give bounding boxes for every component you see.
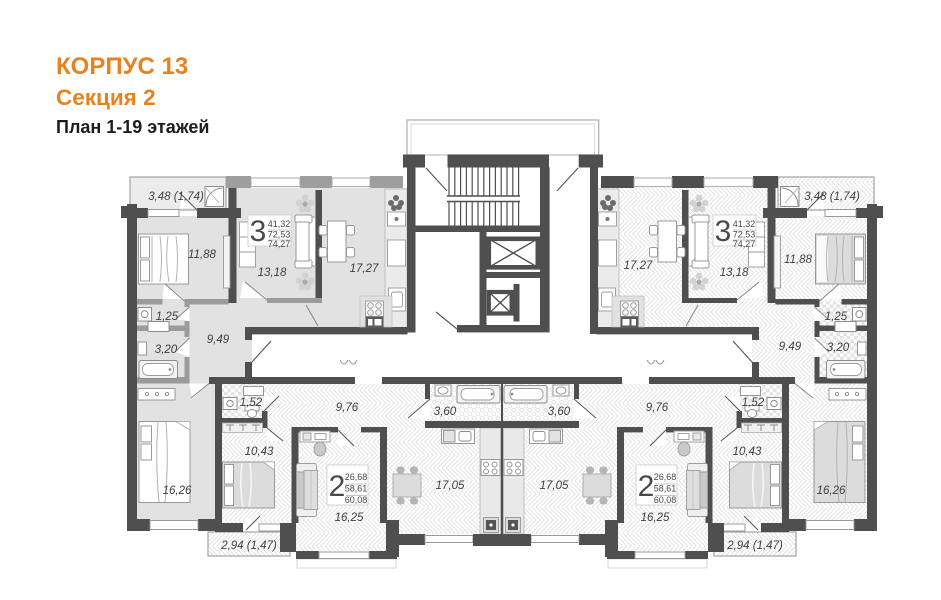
svg-text:1,52: 1,52 — [742, 397, 765, 409]
svg-text:16,25: 16,25 — [641, 512, 670, 524]
svg-text:3,48 (1,74): 3,48 (1,74) — [148, 191, 204, 203]
svg-text:2: 2 — [329, 470, 346, 503]
svg-text:41,32: 41,32 — [733, 219, 756, 229]
svg-text:3,48 (1,74): 3,48 (1,74) — [804, 191, 860, 203]
svg-text:13,18: 13,18 — [258, 267, 287, 279]
svg-text:58,61: 58,61 — [345, 484, 368, 494]
svg-text:9,49: 9,49 — [779, 341, 802, 353]
svg-text:26,68: 26,68 — [345, 472, 368, 482]
svg-text:16,26: 16,26 — [163, 485, 192, 497]
svg-text:74,27: 74,27 — [268, 239, 291, 249]
svg-text:58,61: 58,61 — [654, 484, 677, 494]
svg-text:2,94 (1,47): 2,94 (1,47) — [726, 540, 783, 552]
svg-text:41,32: 41,32 — [268, 219, 291, 229]
svg-text:План 1-19 этажей: План 1-19 этажей — [56, 117, 209, 137]
svg-text:9,49: 9,49 — [207, 334, 230, 346]
svg-text:11,88: 11,88 — [784, 254, 813, 266]
svg-text:1,25: 1,25 — [825, 311, 848, 323]
svg-text:17,27: 17,27 — [350, 263, 379, 275]
svg-text:60,08: 60,08 — [345, 495, 368, 505]
svg-text:10,43: 10,43 — [245, 446, 274, 458]
svg-text:3: 3 — [250, 215, 267, 248]
svg-text:3: 3 — [715, 215, 732, 248]
svg-text:60,08: 60,08 — [654, 495, 677, 505]
svg-text:74,27: 74,27 — [733, 239, 756, 249]
svg-text:10,43: 10,43 — [733, 446, 762, 458]
svg-text:3,60: 3,60 — [548, 406, 571, 418]
svg-text:КОРПУС 13: КОРПУС 13 — [56, 53, 188, 80]
svg-text:72,53: 72,53 — [733, 230, 756, 240]
svg-text:2,94 (1,47): 2,94 (1,47) — [220, 540, 277, 552]
svg-text:1,52: 1,52 — [240, 397, 263, 409]
svg-text:3,20: 3,20 — [827, 342, 850, 354]
svg-text:9,76: 9,76 — [336, 402, 359, 414]
svg-text:11,88: 11,88 — [188, 249, 217, 261]
svg-text:Секция 2: Секция 2 — [56, 85, 156, 110]
svg-text:13,18: 13,18 — [720, 267, 749, 279]
svg-text:17,05: 17,05 — [540, 480, 569, 492]
svg-text:17,27: 17,27 — [624, 260, 653, 272]
svg-text:9,76: 9,76 — [646, 402, 669, 414]
svg-text:16,26: 16,26 — [817, 485, 846, 497]
svg-text:26,68: 26,68 — [654, 472, 677, 482]
svg-text:16,25: 16,25 — [335, 512, 364, 524]
svg-text:3,60: 3,60 — [434, 406, 457, 418]
svg-text:2: 2 — [638, 470, 655, 503]
svg-text:17,05: 17,05 — [436, 480, 465, 492]
svg-text:72,53: 72,53 — [268, 230, 291, 240]
svg-text:1,25: 1,25 — [156, 311, 179, 323]
svg-text:3,20: 3,20 — [155, 344, 178, 356]
